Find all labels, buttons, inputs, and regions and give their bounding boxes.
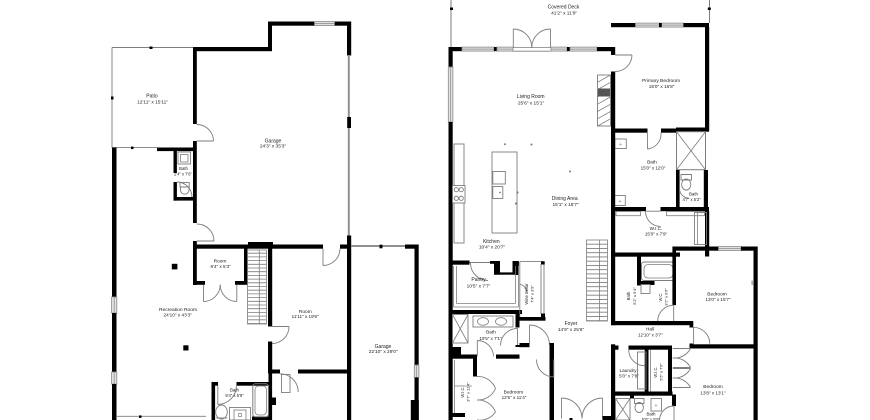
svg-text:41'2" x 11'9": 41'2" x 11'9": [551, 11, 577, 17]
svg-text:Living Room: Living Room: [517, 94, 545, 100]
svg-text:22'10" x 29'0": 22'10" x 29'0": [369, 349, 398, 355]
svg-text:+: +: [619, 199, 622, 205]
svg-text:5'5" x 7'6": 5'5" x 7'6": [659, 363, 664, 381]
svg-text:5'0" x 7'8": 5'0" x 7'8": [619, 374, 639, 379]
svg-text:12'10" x 3'7": 12'10" x 3'7": [638, 333, 663, 338]
svg-text:3'7" x 11'4": 3'7" x 11'4": [466, 382, 471, 402]
svg-text:15'0" x 7'9": 15'0" x 7'9": [645, 232, 668, 237]
svg-text:15'0" x 12'0": 15'0" x 12'0": [641, 166, 666, 171]
svg-text:Bedroom: Bedroom: [703, 384, 722, 390]
svg-text:13'0" x 15'7": 13'0" x 15'7": [705, 297, 731, 302]
svg-text:Bath: Bath: [230, 388, 240, 393]
svg-text:Bath: Bath: [646, 411, 656, 416]
svg-text:15'0" x 16'8": 15'0" x 16'8": [649, 84, 675, 89]
svg-text:+: +: [619, 142, 622, 148]
svg-text:10'4" x 20'7": 10'4" x 20'7": [479, 245, 506, 251]
svg-text:9'4" x 5'9": 9'4" x 5'9": [225, 393, 244, 398]
svg-text:Garage: Garage: [375, 344, 392, 350]
svg-text:24'10" x 43'3": 24'10" x 43'3": [164, 313, 193, 318]
svg-text:Bath: Bath: [179, 166, 188, 171]
svg-text:W.I.C.: W.I.C.: [460, 386, 465, 397]
svg-text:Bath: Bath: [689, 191, 699, 196]
svg-text:Bath: Bath: [486, 330, 496, 335]
svg-text:Dining Area: Dining Area: [552, 196, 578, 202]
svg-text:Pantry: Pantry: [471, 277, 486, 283]
svg-text:12'5" x 11'4": 12'5" x 11'4": [502, 395, 527, 400]
svg-text:W.I.C.: W.I.C.: [653, 366, 658, 377]
svg-text:W.C.: W.C.: [658, 293, 663, 302]
svg-text:Garage: Garage: [265, 138, 282, 144]
svg-text:5'2" x 9'4": 5'2" x 9'4": [632, 287, 637, 305]
svg-text:10'5" x 7'1": 10'5" x 7'1": [479, 336, 502, 341]
svg-text:Patio: Patio: [146, 94, 158, 100]
svg-text:Bath: Bath: [647, 160, 657, 165]
svg-text:Foyer: Foyer: [565, 321, 578, 327]
svg-text:Bath: Bath: [626, 291, 631, 300]
svg-text:25'6" x 15'1": 25'6" x 15'1": [518, 100, 545, 106]
svg-text:+: +: [655, 403, 658, 409]
svg-text:7'4" x 3'9": 7'4" x 3'9": [530, 285, 535, 303]
svg-text:12'11" x 15'11": 12'11" x 15'11": [137, 99, 168, 105]
svg-text:11'11" x 19'6": 11'11" x 19'6": [292, 314, 319, 319]
svg-text:3'2" x 9'6": 3'2" x 9'6": [664, 288, 669, 306]
svg-text:4'7" x 5'2": 4'7" x 5'2": [682, 197, 701, 202]
svg-text:24'3" x 35'3": 24'3" x 35'3": [260, 144, 287, 150]
svg-text:14'9" x 25'6": 14'9" x 25'6": [558, 327, 585, 333]
svg-text:Kitchen: Kitchen: [483, 239, 500, 245]
svg-text:8'4" x 5'3": 8'4" x 5'3": [211, 264, 231, 269]
svg-text:Wine Cellar: Wine Cellar: [524, 283, 529, 305]
svg-text:10'5" x 7'7": 10'5" x 7'7": [467, 283, 491, 289]
svg-text:Hall: Hall: [646, 327, 654, 332]
svg-text:Laundry: Laundry: [620, 368, 638, 373]
svg-text:Covered Deck: Covered Deck: [548, 5, 580, 11]
svg-text:2'4" x 7'6": 2'4" x 7'6": [174, 172, 192, 177]
svg-text:15'1" x 18'7": 15'1" x 18'7": [552, 202, 579, 208]
svg-text:W.I.C.: W.I.C.: [650, 226, 663, 231]
svg-text:13'8" x 13'1": 13'8" x 13'1": [700, 391, 726, 396]
